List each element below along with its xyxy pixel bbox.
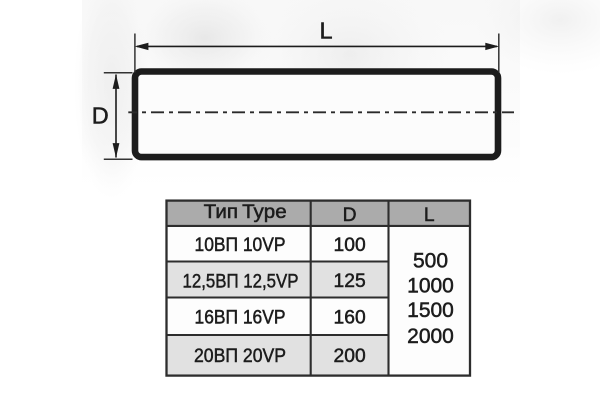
svg-text:L: L [319, 17, 332, 43]
svg-text:12,5ВП 12,5VP: 12,5ВП 12,5VP [183, 271, 299, 292]
svg-text:20ВП 20VP: 20ВП 20VP [194, 346, 286, 367]
svg-text:1500: 1500 [407, 299, 454, 322]
svg-text:160: 160 [334, 308, 366, 329]
svg-text:D: D [92, 102, 109, 128]
svg-text:100: 100 [334, 235, 366, 256]
svg-text:125: 125 [334, 271, 366, 292]
svg-text:16ВП 16VP: 16ВП 16VP [195, 308, 286, 329]
svg-text:1000: 1000 [407, 274, 454, 297]
svg-text:D: D [343, 205, 357, 226]
svg-text:2000: 2000 [407, 325, 454, 348]
svg-text:Тип Type: Тип Type [204, 202, 287, 223]
svg-text:500: 500 [413, 250, 448, 273]
svg-text:10ВП 10VP: 10ВП 10VP [195, 235, 286, 256]
svg-text:L: L [424, 205, 435, 226]
svg-text:200: 200 [334, 346, 366, 367]
